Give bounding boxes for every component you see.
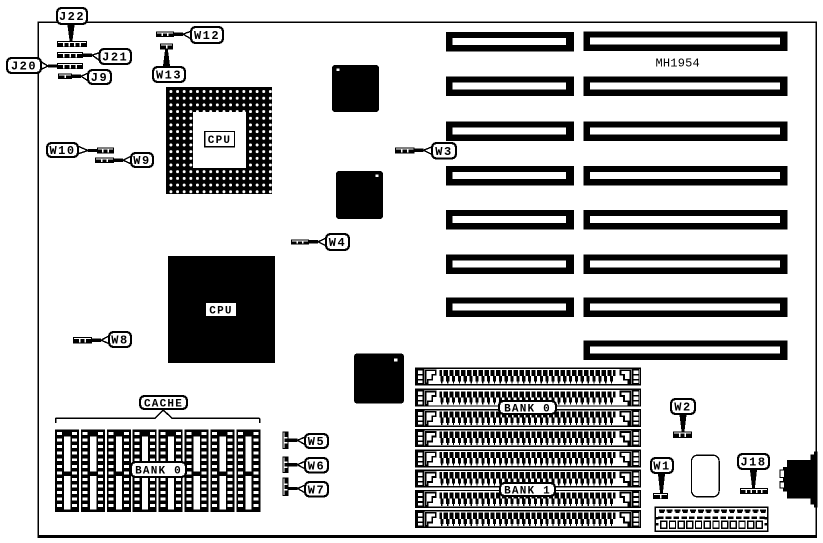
svg-text:BANK 0: BANK 0 <box>135 466 182 478</box>
svg-text:J21: J21 <box>102 51 128 65</box>
svg-text:J18: J18 <box>740 456 766 470</box>
svg-text:CPU: CPU <box>209 306 232 318</box>
svg-text:J9: J9 <box>91 71 108 85</box>
svg-text:CACHE: CACHE <box>144 399 183 411</box>
svg-text:J20: J20 <box>11 60 37 74</box>
svg-text:W9: W9 <box>133 154 150 168</box>
svg-text:BANK 1: BANK 1 <box>504 486 551 498</box>
svg-text:W2: W2 <box>674 401 691 415</box>
svg-text:W10: W10 <box>49 144 75 158</box>
svg-text:W6: W6 <box>308 459 325 473</box>
svg-text:W13: W13 <box>156 69 182 83</box>
svg-text:W8: W8 <box>111 334 128 348</box>
svg-text:W7: W7 <box>308 483 325 497</box>
svg-text:W12: W12 <box>194 29 220 43</box>
svg-text:J22: J22 <box>59 10 85 24</box>
svg-text:CPU: CPU <box>208 135 231 147</box>
svg-text:W1: W1 <box>653 460 670 474</box>
svg-text:W4: W4 <box>329 236 346 250</box>
svg-text:BANK 0: BANK 0 <box>504 404 551 416</box>
svg-text:W5: W5 <box>308 435 325 449</box>
svg-text:MH1954: MH1954 <box>656 57 700 71</box>
svg-text:W3: W3 <box>435 145 452 159</box>
